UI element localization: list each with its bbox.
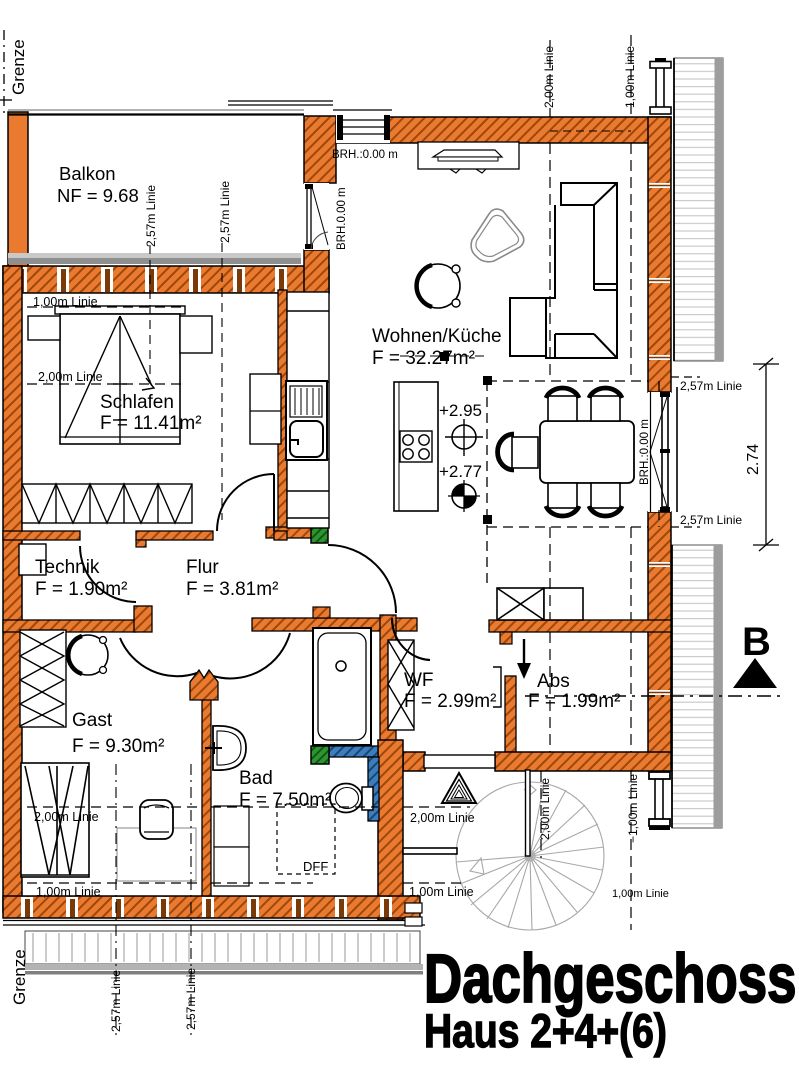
svg-text:1,00m Linie: 1,00m Linie [409,885,474,899]
svg-text:Technik: Technik [35,557,100,578]
svg-text:Bad: Bad [239,768,273,789]
svg-text:2,00m Linie: 2,00m Linie [538,778,552,840]
svg-text:1,00m Linie: 1,00m Linie [623,46,637,108]
svg-text:−1,00m Linie: −1,00m Linie [626,774,640,843]
svg-text:2,00m Linie: 2,00m Linie [34,810,99,824]
svg-text:F = 2.99m²: F = 2.99m² [404,691,496,712]
svg-text:F = 32.27m²: F = 32.27m² [372,348,475,369]
svg-text:2,57m Linie: 2,57m Linie [184,968,198,1030]
svg-text:1,00m Linie: 1,00m Linie [36,885,101,899]
svg-text:2,00m Linie: 2,00m Linie [38,370,103,384]
svg-text:Schlafen: Schlafen [100,392,174,413]
svg-text:Grenze: Grenze [10,949,29,1005]
svg-text:DFF: DFF [303,859,328,874]
svg-text:Balkon: Balkon [59,163,116,184]
svg-text:Haus 2+4+(6): Haus 2+4+(6) [424,1006,667,1058]
svg-text:F = 1.90m²: F = 1.90m² [35,579,127,600]
svg-text:Flur: Flur [186,557,219,578]
svg-text:B: B [742,620,771,664]
svg-text:F = 1.99m²: F = 1.99m² [528,691,620,712]
svg-text:2,57m Linie: 2,57m Linie [109,970,123,1032]
svg-text:BRH.0.00 m: BRH.0.00 m [336,187,348,250]
svg-text:+2.95: +2.95 [439,401,482,420]
svg-text:BRH.:0.00 m: BRH.:0.00 m [332,149,398,161]
svg-text:Abs: Abs [537,671,570,692]
svg-text:Grenze: Grenze [9,39,28,95]
svg-text:2,57m Linie: 2,57m Linie [144,185,158,247]
svg-text:2.74: 2.74 [745,444,762,475]
svg-text:2,00m Linie: 2,00m Linie [410,811,475,825]
svg-text:2,00m Linie: 2,00m Linie [542,46,556,108]
svg-text:1,00m Linie: 1,00m Linie [33,295,98,309]
svg-text:Gast: Gast [72,710,113,731]
svg-text:F = 7.50m²: F = 7.50m² [239,790,331,811]
svg-text:2,57m Linie: 2,57m Linie [680,379,742,393]
svg-text:F = 9.30m²: F = 9.30m² [72,736,164,757]
svg-text:WF: WF [404,670,434,691]
svg-text:F = 11.41m²: F = 11.41m² [100,413,202,434]
svg-text:F = 3.81m²: F = 3.81m² [186,579,278,600]
svg-text:BRH.:0.00 m: BRH.:0.00 m [639,419,651,485]
svg-text:+2.77: +2.77 [439,462,482,481]
svg-text:2,57m Linie: 2,57m Linie [218,181,232,243]
svg-text:1,00m Linie: 1,00m Linie [612,888,669,900]
svg-text:2,57m Linie: 2,57m Linie [680,513,742,527]
svg-text:Wohnen/Küche: Wohnen/Küche [372,326,502,347]
svg-text:NF = 9.68: NF = 9.68 [57,185,139,206]
